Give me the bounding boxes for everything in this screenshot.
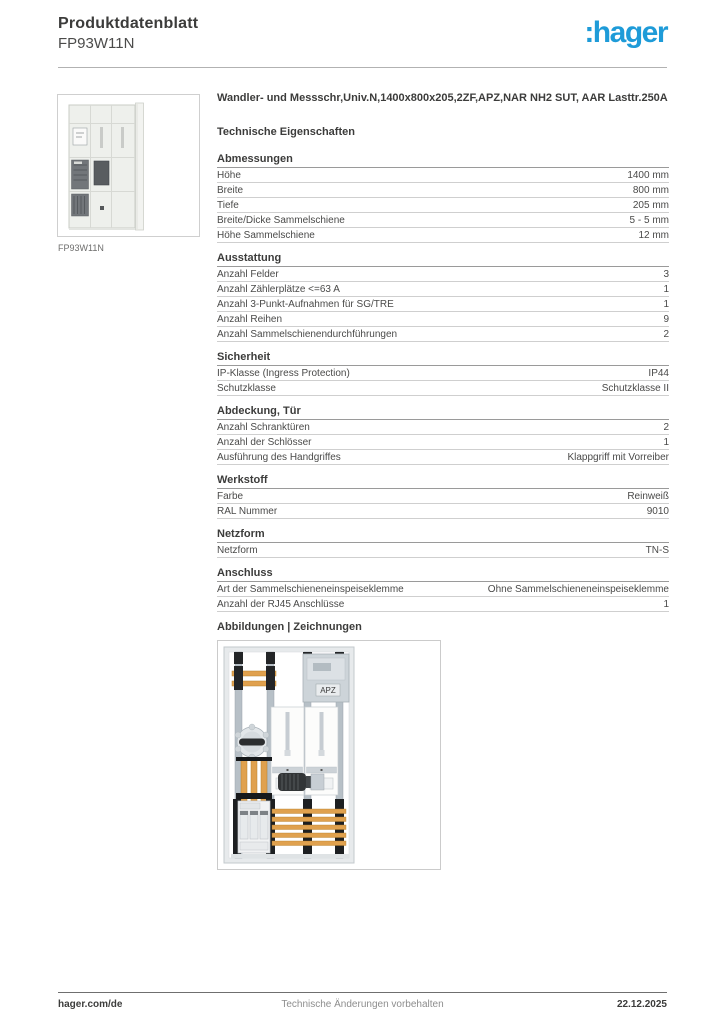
section-rows: Art der Sammelschieneneinspeiseklemme Oh… bbox=[217, 582, 669, 612]
dark-window bbox=[94, 161, 109, 185]
section-heading: Abdeckung, Tür bbox=[217, 405, 669, 420]
figures-heading: Abbildungen | Zeichnungen bbox=[217, 621, 669, 634]
spec-value: 1400 mm bbox=[627, 170, 669, 181]
section-rows: Anzahl Schranktüren 2 Anzahl der Schlöss… bbox=[217, 420, 669, 465]
table-row: Anzahl Schranktüren 2 bbox=[217, 420, 669, 435]
fuse-handles bbox=[240, 811, 268, 839]
spec-label: Anzahl der RJ45 Anschlüsse bbox=[217, 599, 344, 610]
spec-label: IP-Klasse (Ingress Protection) bbox=[217, 368, 350, 379]
table-row: Anzahl der RJ45 Anschlüsse 1 bbox=[217, 597, 669, 612]
section-rows: Netzform TN-S bbox=[217, 543, 669, 558]
table-row: Anzahl Felder 3 bbox=[217, 267, 669, 282]
cabinet-drawing-graphic: APZ bbox=[222, 645, 436, 865]
spec-value: 9 bbox=[663, 314, 669, 325]
spec-section: Ausstattung Anzahl Felder 3 Anzahl Zähle… bbox=[217, 252, 669, 342]
section-heading: Ausstattung bbox=[217, 252, 669, 267]
table-row: Netzform TN-S bbox=[217, 543, 669, 558]
table-row: Schutzklasse Schutzklasse II bbox=[217, 381, 669, 396]
handle bbox=[239, 739, 265, 746]
doc-type-title: Produktdatenblatt bbox=[58, 14, 667, 33]
spec-label: Anzahl der Schlösser bbox=[217, 437, 312, 448]
section-heading: Netzform bbox=[217, 528, 669, 543]
small-module bbox=[73, 128, 87, 145]
technical-drawing: APZ bbox=[217, 640, 441, 870]
cabinet-photo-graphic bbox=[58, 95, 199, 236]
spec-label: Farbe bbox=[217, 491, 243, 502]
spec-label: Anzahl Reihen bbox=[217, 314, 282, 325]
footer-divider bbox=[58, 992, 667, 993]
base-strip bbox=[231, 854, 349, 858]
spec-section: Abmessungen Höhe 1400 mm Breite 800 mm T… bbox=[217, 153, 669, 243]
table-row: Farbe Reinweiß bbox=[217, 489, 669, 504]
spec-section: Anschluss Art der Sammelschieneneinspeis… bbox=[217, 567, 669, 612]
section-rows: IP-Klasse (Ingress Protection) IP44 Schu… bbox=[217, 366, 669, 396]
spec-value: 2 bbox=[663, 329, 669, 340]
table-row: Anzahl Sammelschienendurchführungen 2 bbox=[217, 327, 669, 342]
spec-label: Anzahl Schranktüren bbox=[217, 422, 310, 433]
section-rows: Farbe Reinweiß RAL Nummer 9010 bbox=[217, 489, 669, 519]
spec-value: 1 bbox=[663, 284, 669, 295]
busbar-clamp bbox=[234, 666, 243, 690]
table-row: Tiefe 205 mm bbox=[217, 198, 669, 213]
spec-section: Abdeckung, Tür Anzahl Schranktüren 2 Anz… bbox=[217, 405, 669, 465]
spec-value: 1 bbox=[663, 599, 669, 610]
table-row: Breite 800 mm bbox=[217, 183, 669, 198]
spec-section: Werkstoff Farbe Reinweiß RAL Nummer 9010 bbox=[217, 474, 669, 519]
spec-label: Anzahl Sammelschienendurchführungen bbox=[217, 329, 397, 340]
table-row: Art der Sammelschieneneinspeiseklemme Oh… bbox=[217, 582, 669, 597]
table-row: Anzahl Reihen 9 bbox=[217, 312, 669, 327]
spec-value: 205 mm bbox=[633, 200, 669, 211]
spec-label: Höhe Sammelschiene bbox=[217, 230, 315, 241]
table-row: Anzahl 3-Punkt-Aufnahmen für SG/TRE 1 bbox=[217, 297, 669, 312]
section-heading: Sicherheit bbox=[217, 351, 669, 366]
spec-value: 2 bbox=[663, 422, 669, 433]
spec-value: Ohne Sammelschieneneinspeiseklemme bbox=[488, 584, 669, 595]
dark-vented-module bbox=[72, 194, 89, 216]
dark-vented-module bbox=[72, 160, 89, 189]
product-code: FP93W11N bbox=[58, 35, 667, 52]
spec-value: IP44 bbox=[648, 368, 669, 379]
table-row: Anzahl der Schlösser 1 bbox=[217, 435, 669, 450]
apz-box: APZ bbox=[303, 654, 349, 702]
datasheet-page: Produktdatenblatt FP93W11N :hager bbox=[0, 0, 724, 1024]
table-row: Anzahl Zählerplätze <=63 A 1 bbox=[217, 282, 669, 297]
spec-label: Ausführung des Handgriffes bbox=[217, 452, 341, 463]
spec-value: Schutzklasse II bbox=[602, 383, 669, 394]
tech-properties-heading: Technische Eigenschaften bbox=[217, 126, 669, 138]
footer-disclaimer: Technische Änderungen vorbehalten bbox=[281, 999, 443, 1011]
spec-label: Art der Sammelschieneneinspeiseklemme bbox=[217, 584, 404, 595]
table-row: RAL Nummer 9010 bbox=[217, 504, 669, 519]
cylinder-component bbox=[278, 773, 324, 791]
spec-value: Reinweiß bbox=[627, 491, 669, 502]
spec-section: Sicherheit IP-Klasse (Ingress Protection… bbox=[217, 351, 669, 396]
section-rows: Anzahl Felder 3 Anzahl Zählerplätze <=63… bbox=[217, 267, 669, 342]
spec-value: 1 bbox=[663, 437, 669, 448]
table-row: Ausführung des Handgriffes Klappgriff mi… bbox=[217, 450, 669, 465]
main-content: Wandler- und Messschr,Univ.N,1400x800x20… bbox=[217, 92, 669, 870]
spec-label: Tiefe bbox=[217, 200, 239, 211]
spec-label: Netzform bbox=[217, 545, 258, 556]
section-rows: Höhe 1400 mm Breite 800 mm Tiefe 205 mm … bbox=[217, 168, 669, 243]
cabinet-body bbox=[69, 105, 143, 230]
spec-value: 12 mm bbox=[638, 230, 669, 241]
table-row: Höhe 1400 mm bbox=[217, 168, 669, 183]
spec-label: Höhe bbox=[217, 170, 241, 181]
section-heading: Anschluss bbox=[217, 567, 669, 582]
spec-label: Anzahl Zählerplätze <=63 A bbox=[217, 284, 340, 295]
footer-date: 22.12.2025 bbox=[617, 999, 667, 1011]
section-heading: Werkstoff bbox=[217, 474, 669, 489]
page-header: Produktdatenblatt FP93W11N :hager bbox=[58, 14, 667, 52]
busbar-clamp bbox=[236, 757, 272, 761]
photo-caption: FP93W11N bbox=[58, 243, 104, 253]
spec-value: 9010 bbox=[647, 506, 669, 517]
spec-section: Netzform Netzform TN-S bbox=[217, 528, 669, 558]
spec-label: Schutzklasse bbox=[217, 383, 276, 394]
product-title: Wandler- und Messschr,Univ.N,1400x800x20… bbox=[217, 92, 669, 105]
table-row: Höhe Sammelschiene 12 mm bbox=[217, 228, 669, 243]
busbar-clamp bbox=[236, 793, 272, 799]
busbar-clamp bbox=[266, 666, 275, 690]
spec-sections: Abmessungen Höhe 1400 mm Breite 800 mm T… bbox=[217, 153, 669, 612]
header-divider bbox=[58, 67, 667, 68]
vertical-busbars bbox=[236, 757, 272, 801]
spec-label: Anzahl Felder bbox=[217, 269, 279, 280]
spec-value: 800 mm bbox=[633, 185, 669, 196]
spec-label: Anzahl 3-Punkt-Aufnahmen für SG/TRE bbox=[217, 299, 394, 310]
meter-slot bbox=[121, 127, 124, 148]
section-heading: Abmessungen bbox=[217, 153, 669, 168]
hager-logo: :hager bbox=[584, 18, 667, 48]
cabinet-door bbox=[136, 103, 144, 230]
fuse-block bbox=[238, 801, 270, 853]
spec-value: TN-S bbox=[646, 545, 669, 556]
spec-label: RAL Nummer bbox=[217, 506, 277, 517]
product-photo bbox=[57, 94, 200, 237]
table-row: Breite/Dicke Sammelschiene 5 - 5 mm bbox=[217, 213, 669, 228]
spec-value: 1 bbox=[663, 299, 669, 310]
spec-value: Klappgriff mit Vorreiber bbox=[567, 452, 669, 463]
footer-website: hager.com/de bbox=[58, 999, 122, 1011]
meter-slot bbox=[100, 127, 103, 148]
spec-label: Breite/Dicke Sammelschiene bbox=[217, 215, 345, 226]
knob bbox=[100, 206, 104, 210]
apz-label: APZ bbox=[320, 686, 336, 695]
table-row: IP-Klasse (Ingress Protection) IP44 bbox=[217, 366, 669, 381]
spec-value: 3 bbox=[663, 269, 669, 280]
spec-label: Breite bbox=[217, 185, 243, 196]
spec-value: 5 - 5 mm bbox=[630, 215, 669, 226]
